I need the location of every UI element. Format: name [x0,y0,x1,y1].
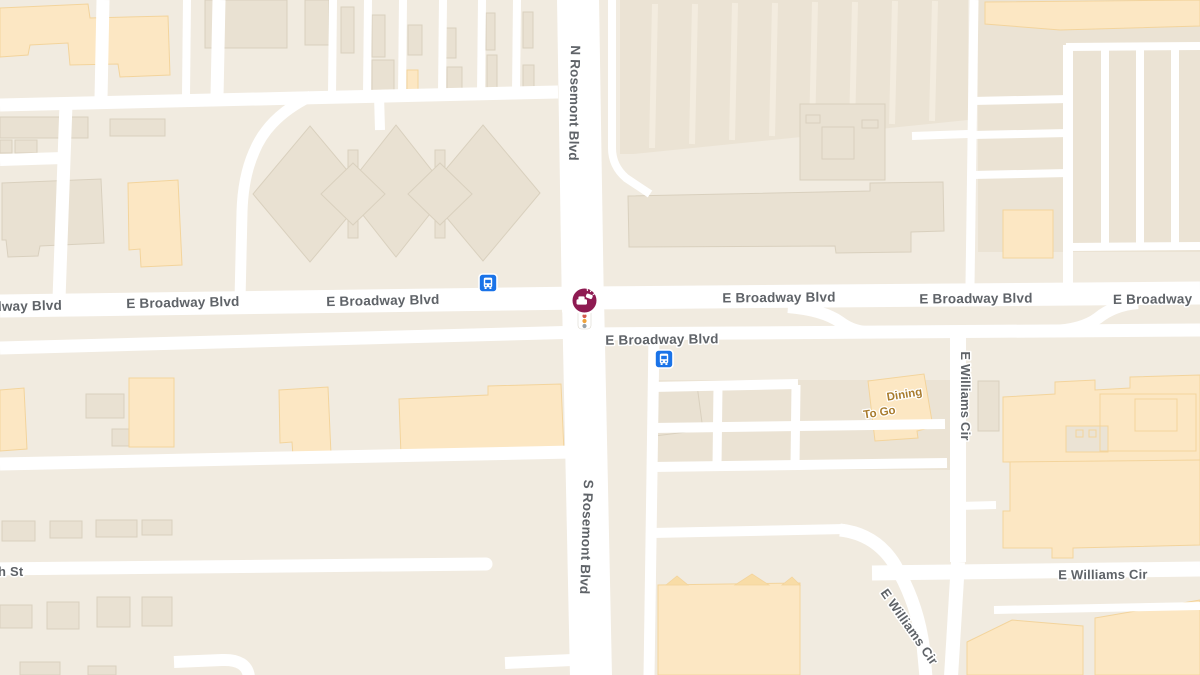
label-n-rosemont: N Rosemont Blvd [566,45,583,161]
label-broadway-frontage: E Broadway Blvd [605,331,718,348]
mall-diamond-buildings [253,125,540,262]
label-broadway-2: E Broadway Blvd [326,292,440,309]
label-broadway-1: E Broadway Blvd [126,294,240,311]
bus-stop-icon[interactable] [655,350,673,368]
label-broadway-partial-left: lway Blvd [0,298,62,314]
bus-stop-icon[interactable] [479,274,497,292]
label-side-street-partial: h St [0,564,24,579]
label-broadway-partial-right: E Broadway [1113,291,1193,307]
label-williams-vertical: E Williams Cir [958,351,973,440]
map-canvas[interactable]: lway Blvd E Broadway Blvd E Broadway Blv… [0,0,1200,675]
label-broadway-3: E Broadway Blvd [722,290,835,306]
label-broadway-4: E Broadway Blvd [919,291,1032,307]
car-crash-incident-icon[interactable] [570,286,598,314]
road-williams-horizontal [872,569,1200,573]
road-side-street [0,564,486,569]
label-williams-horizontal: E Williams Cir [1058,567,1147,583]
